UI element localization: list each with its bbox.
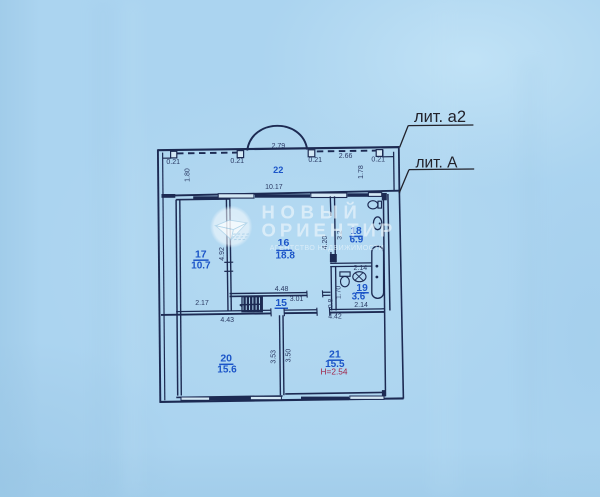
- svg-text:2.79: 2.79: [272, 143, 286, 150]
- svg-text:лит. а2: лит. а2: [414, 108, 466, 126]
- svg-text:18.8: 18.8: [275, 250, 295, 261]
- svg-text:3.01: 3.01: [290, 296, 304, 303]
- svg-text:4.43: 4.43: [220, 317, 234, 324]
- svg-text:10.17: 10.17: [265, 184, 283, 191]
- svg-text:2.14: 2.14: [353, 265, 367, 272]
- svg-text:2.14: 2.14: [354, 302, 368, 309]
- svg-text:АГЕНТСТВО НЕДВИЖИМОСТИ: АГЕНТСТВО НЕДВИЖИМОСТИ: [270, 245, 384, 252]
- svg-text:1.70: 1.70: [335, 286, 342, 299]
- svg-text:ОРИЕНТИР: ОРИЕНТИР: [262, 219, 397, 240]
- svg-text:1.80: 1.80: [184, 168, 191, 182]
- svg-text:3.6: 3.6: [352, 292, 366, 303]
- svg-text:1.78: 1.78: [358, 165, 365, 179]
- svg-text:0.8: 0.8: [327, 298, 334, 308]
- svg-text:0.21: 0.21: [166, 159, 180, 166]
- svg-text:15: 15: [275, 297, 287, 309]
- svg-text:4.92: 4.92: [219, 247, 226, 261]
- svg-text:20: 20: [220, 353, 232, 365]
- svg-text:10.7: 10.7: [191, 260, 211, 271]
- svg-text:3.50: 3.50: [286, 349, 293, 363]
- svg-text:Н=2.54: Н=2.54: [321, 367, 348, 377]
- svg-text:3.53: 3.53: [271, 350, 278, 364]
- svg-text:0.21: 0.21: [371, 156, 385, 163]
- svg-text:0.21: 0.21: [230, 158, 244, 165]
- svg-text:17: 17: [195, 248, 207, 260]
- svg-text:15.6: 15.6: [217, 364, 237, 375]
- svg-text:2.17: 2.17: [195, 300, 209, 307]
- svg-text:0.21: 0.21: [308, 157, 322, 164]
- svg-text:2.66: 2.66: [339, 153, 353, 160]
- svg-text:4.42: 4.42: [328, 313, 342, 320]
- svg-text:22: 22: [273, 165, 283, 175]
